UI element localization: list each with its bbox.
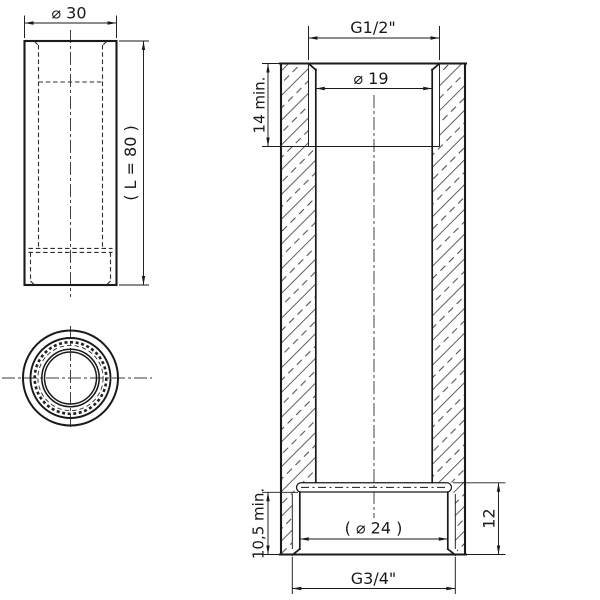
drawing-canvas: ⌀ 30 ( L = 80 ): [0, 0, 600, 600]
dim-length-80: ( L = 80 ): [119, 41, 149, 285]
hidden-chamfer-top-left: [35, 42, 39, 46]
dim-bore-24: ( ⌀ 24 ): [300, 519, 448, 541]
dim-thread-g12: G1/2": [309, 18, 440, 60]
hidden-chamfer-top-right: [103, 42, 107, 46]
dim-diameter-30-label: ⌀ 30: [51, 4, 86, 23]
section-view: G1/2" ⌀ 19 14 min. 10,5 min.: [250, 18, 506, 594]
dim-depth-105min-label: 10,5 min.: [250, 488, 268, 559]
technical-drawing-page: ⌀ 30 ( L = 80 ): [0, 0, 600, 600]
section-wall-right-hatch: [432, 65, 465, 555]
dim-height-12-label: 12: [480, 508, 499, 528]
section-wall-left-hatch: [281, 65, 316, 555]
dim-depth-14min: 14 min.: [251, 64, 280, 147]
dim-bore-24-label: ( ⌀ 24 ): [345, 519, 403, 538]
dim-depth-14min-label: 14 min.: [251, 77, 269, 134]
dim-thread-g34-label: G3/4": [351, 569, 397, 588]
bottom-view: [2, 326, 152, 430]
dim-bore-19: ⌀ 19: [316, 69, 432, 90]
dim-thread-g34: G3/4": [292, 557, 455, 594]
front-view: ⌀ 30 ( L = 80 ): [25, 4, 150, 298]
dim-bore-19-label: ⌀ 19: [353, 69, 388, 88]
dim-thread-g12-label: G1/2": [350, 18, 396, 37]
dim-length-80-label: ( L = 80 ): [121, 125, 140, 201]
